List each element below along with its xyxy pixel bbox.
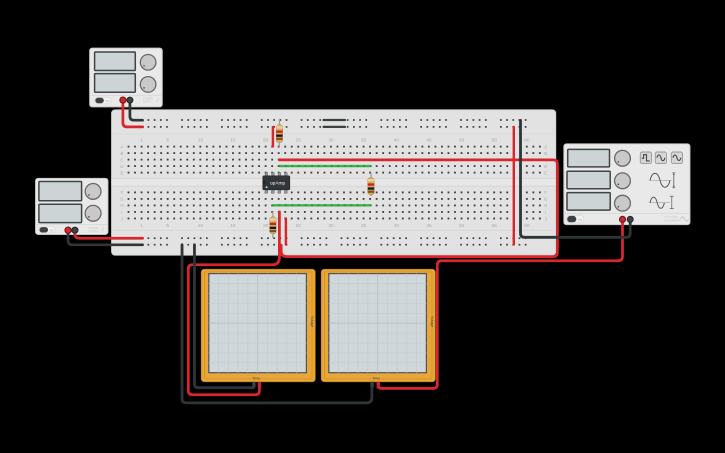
svg-text:Time: Time bbox=[372, 377, 380, 381]
svg-text:50: 50 bbox=[459, 138, 465, 144]
svg-text:35: 35 bbox=[361, 223, 367, 229]
svg-text:E: E bbox=[120, 170, 123, 175]
svg-text:30: 30 bbox=[328, 223, 334, 229]
svg-text:I: I bbox=[545, 210, 546, 215]
svg-text:Voltage: Voltage bbox=[430, 316, 434, 327]
svg-text:55: 55 bbox=[492, 138, 498, 144]
svg-text:60: 60 bbox=[524, 138, 530, 144]
svg-text:GENERATOR: GENERATOR bbox=[664, 218, 680, 222]
svg-text:25: 25 bbox=[296, 138, 302, 144]
svg-text:H: H bbox=[120, 203, 123, 208]
svg-text:B: B bbox=[544, 151, 547, 156]
svg-text:1: 1 bbox=[140, 223, 143, 229]
svg-text:A: A bbox=[544, 144, 547, 149]
svg-text:40: 40 bbox=[394, 138, 400, 144]
svg-text:Voltage: Voltage bbox=[310, 316, 314, 327]
svg-text:E: E bbox=[544, 170, 547, 175]
svg-text:55: 55 bbox=[492, 223, 498, 229]
svg-text:H: H bbox=[544, 203, 547, 208]
svg-text:J: J bbox=[545, 216, 547, 221]
svg-text:45: 45 bbox=[426, 223, 432, 229]
svg-text:Time: Time bbox=[252, 377, 260, 381]
svg-text:I: I bbox=[121, 210, 122, 215]
svg-text:15: 15 bbox=[230, 138, 236, 144]
svg-text:D: D bbox=[120, 164, 123, 169]
svg-text:10: 10 bbox=[198, 223, 204, 229]
svg-text:J: J bbox=[121, 216, 123, 221]
svg-text:SUPPLY: SUPPLY bbox=[143, 100, 153, 104]
svg-text:ON: ON bbox=[50, 230, 54, 232]
svg-text:20: 20 bbox=[263, 223, 269, 229]
svg-text:30: 30 bbox=[328, 138, 334, 144]
svg-text:60: 60 bbox=[524, 223, 530, 229]
svg-text:B: B bbox=[120, 151, 123, 156]
svg-text:F: F bbox=[544, 190, 547, 195]
svg-text:A: A bbox=[120, 144, 123, 149]
svg-text:20: 20 bbox=[263, 138, 269, 144]
svg-text:C: C bbox=[120, 157, 123, 162]
svg-text:1: 1 bbox=[140, 138, 143, 144]
svg-text:opAmp: opAmp bbox=[270, 181, 286, 187]
svg-text:50: 50 bbox=[459, 223, 465, 229]
svg-text:40: 40 bbox=[394, 223, 400, 229]
svg-text:D: D bbox=[544, 164, 547, 169]
svg-text:ON: ON bbox=[578, 220, 582, 222]
svg-text:5: 5 bbox=[166, 223, 169, 229]
svg-text:10: 10 bbox=[198, 138, 204, 144]
svg-text:ON: ON bbox=[106, 101, 110, 103]
svg-text:F: F bbox=[121, 190, 124, 195]
svg-text:SUPPLY: SUPPLY bbox=[89, 229, 99, 233]
svg-text:45: 45 bbox=[426, 138, 432, 144]
svg-text:25: 25 bbox=[296, 223, 302, 229]
svg-text:5: 5 bbox=[166, 138, 169, 144]
svg-text:15: 15 bbox=[230, 223, 236, 229]
svg-text:35: 35 bbox=[361, 138, 367, 144]
